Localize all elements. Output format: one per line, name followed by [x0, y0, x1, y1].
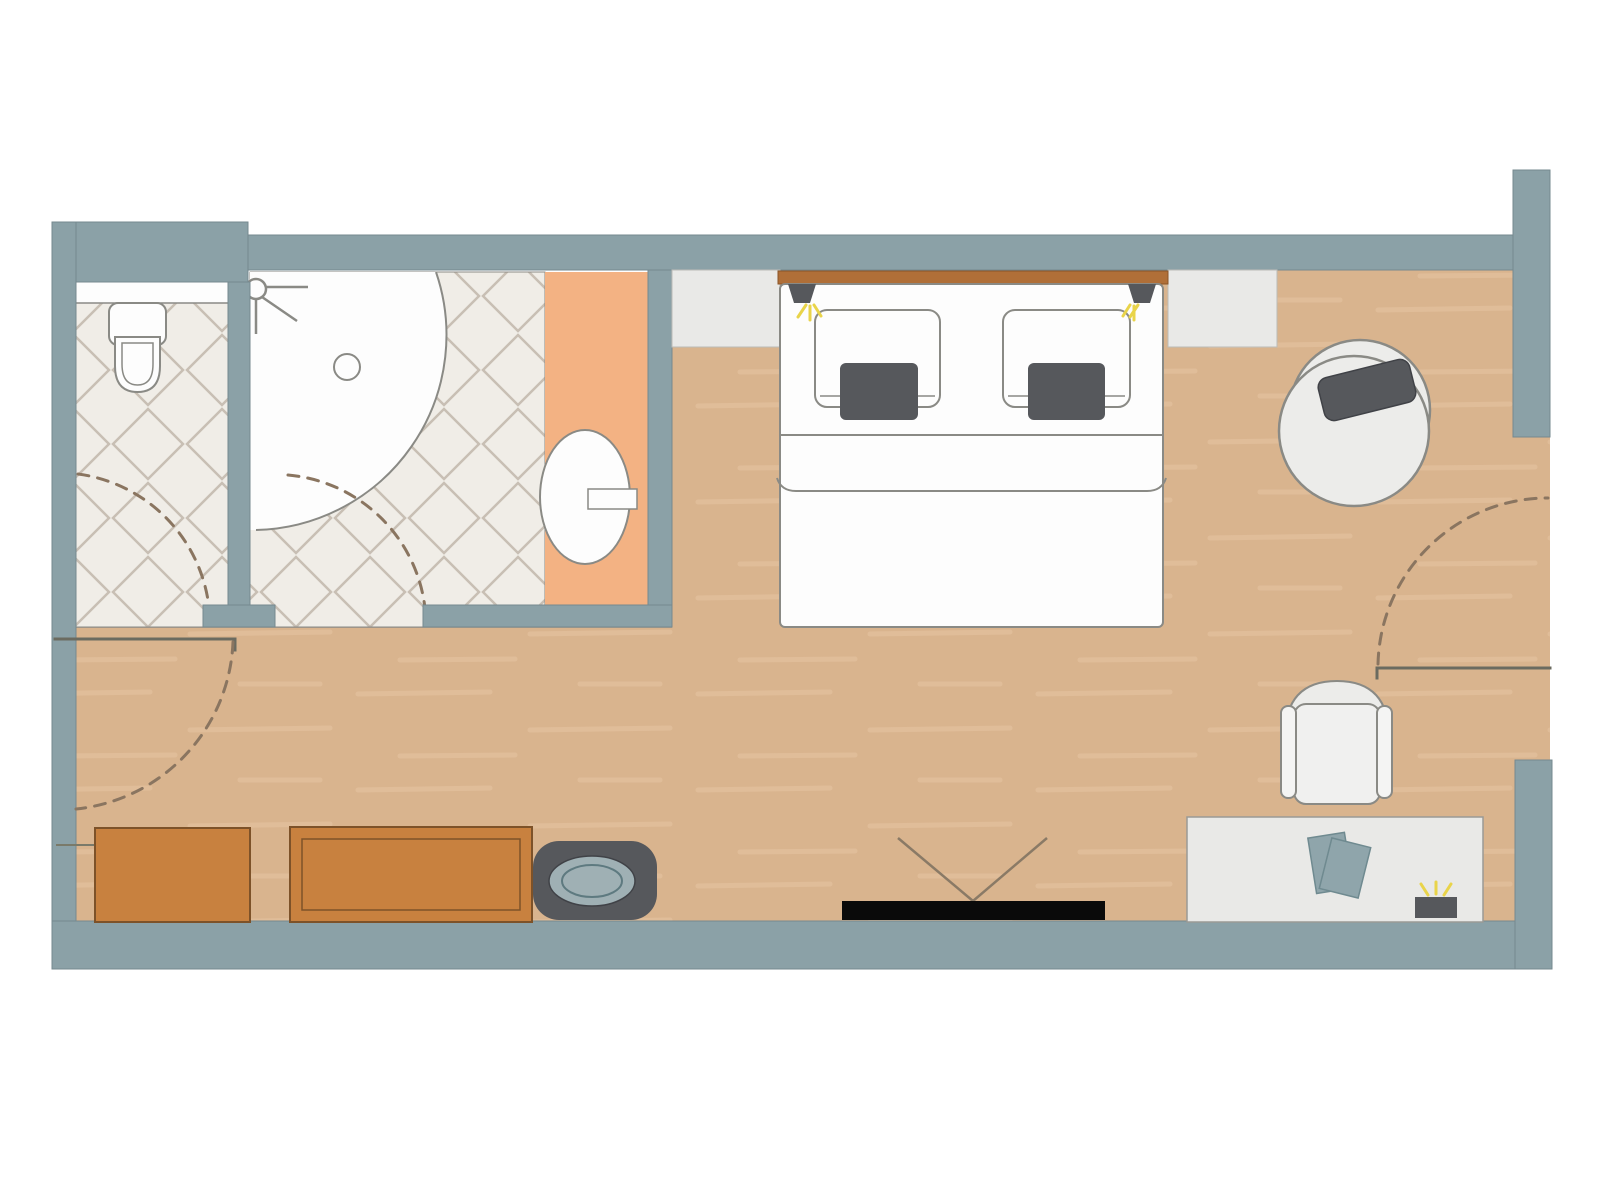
wall-bottom — [52, 921, 1552, 969]
shower-drain-icon — [334, 354, 360, 380]
dresser-plain — [95, 828, 250, 922]
double-bed — [777, 271, 1168, 627]
bedside-ledge-left — [672, 270, 780, 347]
cushion-left — [840, 363, 918, 420]
armchair-seat — [1294, 704, 1380, 804]
floor-plan-drawing — [0, 0, 1600, 1200]
desk — [1187, 817, 1483, 922]
wall-divider-foot — [203, 605, 275, 627]
dresser-framed — [290, 827, 532, 922]
armchair-armrest-right — [1377, 706, 1392, 798]
wall-top — [248, 235, 1550, 270]
wall-right-lower — [1515, 760, 1552, 969]
armchair-armrest-left — [1281, 706, 1296, 798]
wall-top-left-block — [52, 222, 248, 282]
wall-bath-bottom — [423, 605, 672, 627]
wc-shelf-band — [76, 282, 228, 303]
cushion-right — [1028, 363, 1105, 420]
armchair — [1281, 681, 1392, 804]
wall-left — [52, 222, 76, 969]
desk-lamp-base — [1415, 897, 1457, 918]
wall-vanity-right — [648, 270, 672, 605]
tv-screen-bar — [842, 901, 1105, 920]
sink-faucet — [588, 489, 637, 509]
wall-wc-shower-divider — [228, 282, 250, 605]
stool-dark — [533, 841, 657, 920]
bedside-ledge-right — [1168, 270, 1277, 347]
toilet-icon — [109, 303, 166, 392]
floor-plan-canvas — [0, 0, 1600, 1200]
headboard — [778, 271, 1168, 284]
wall-right-upper — [1513, 170, 1550, 437]
